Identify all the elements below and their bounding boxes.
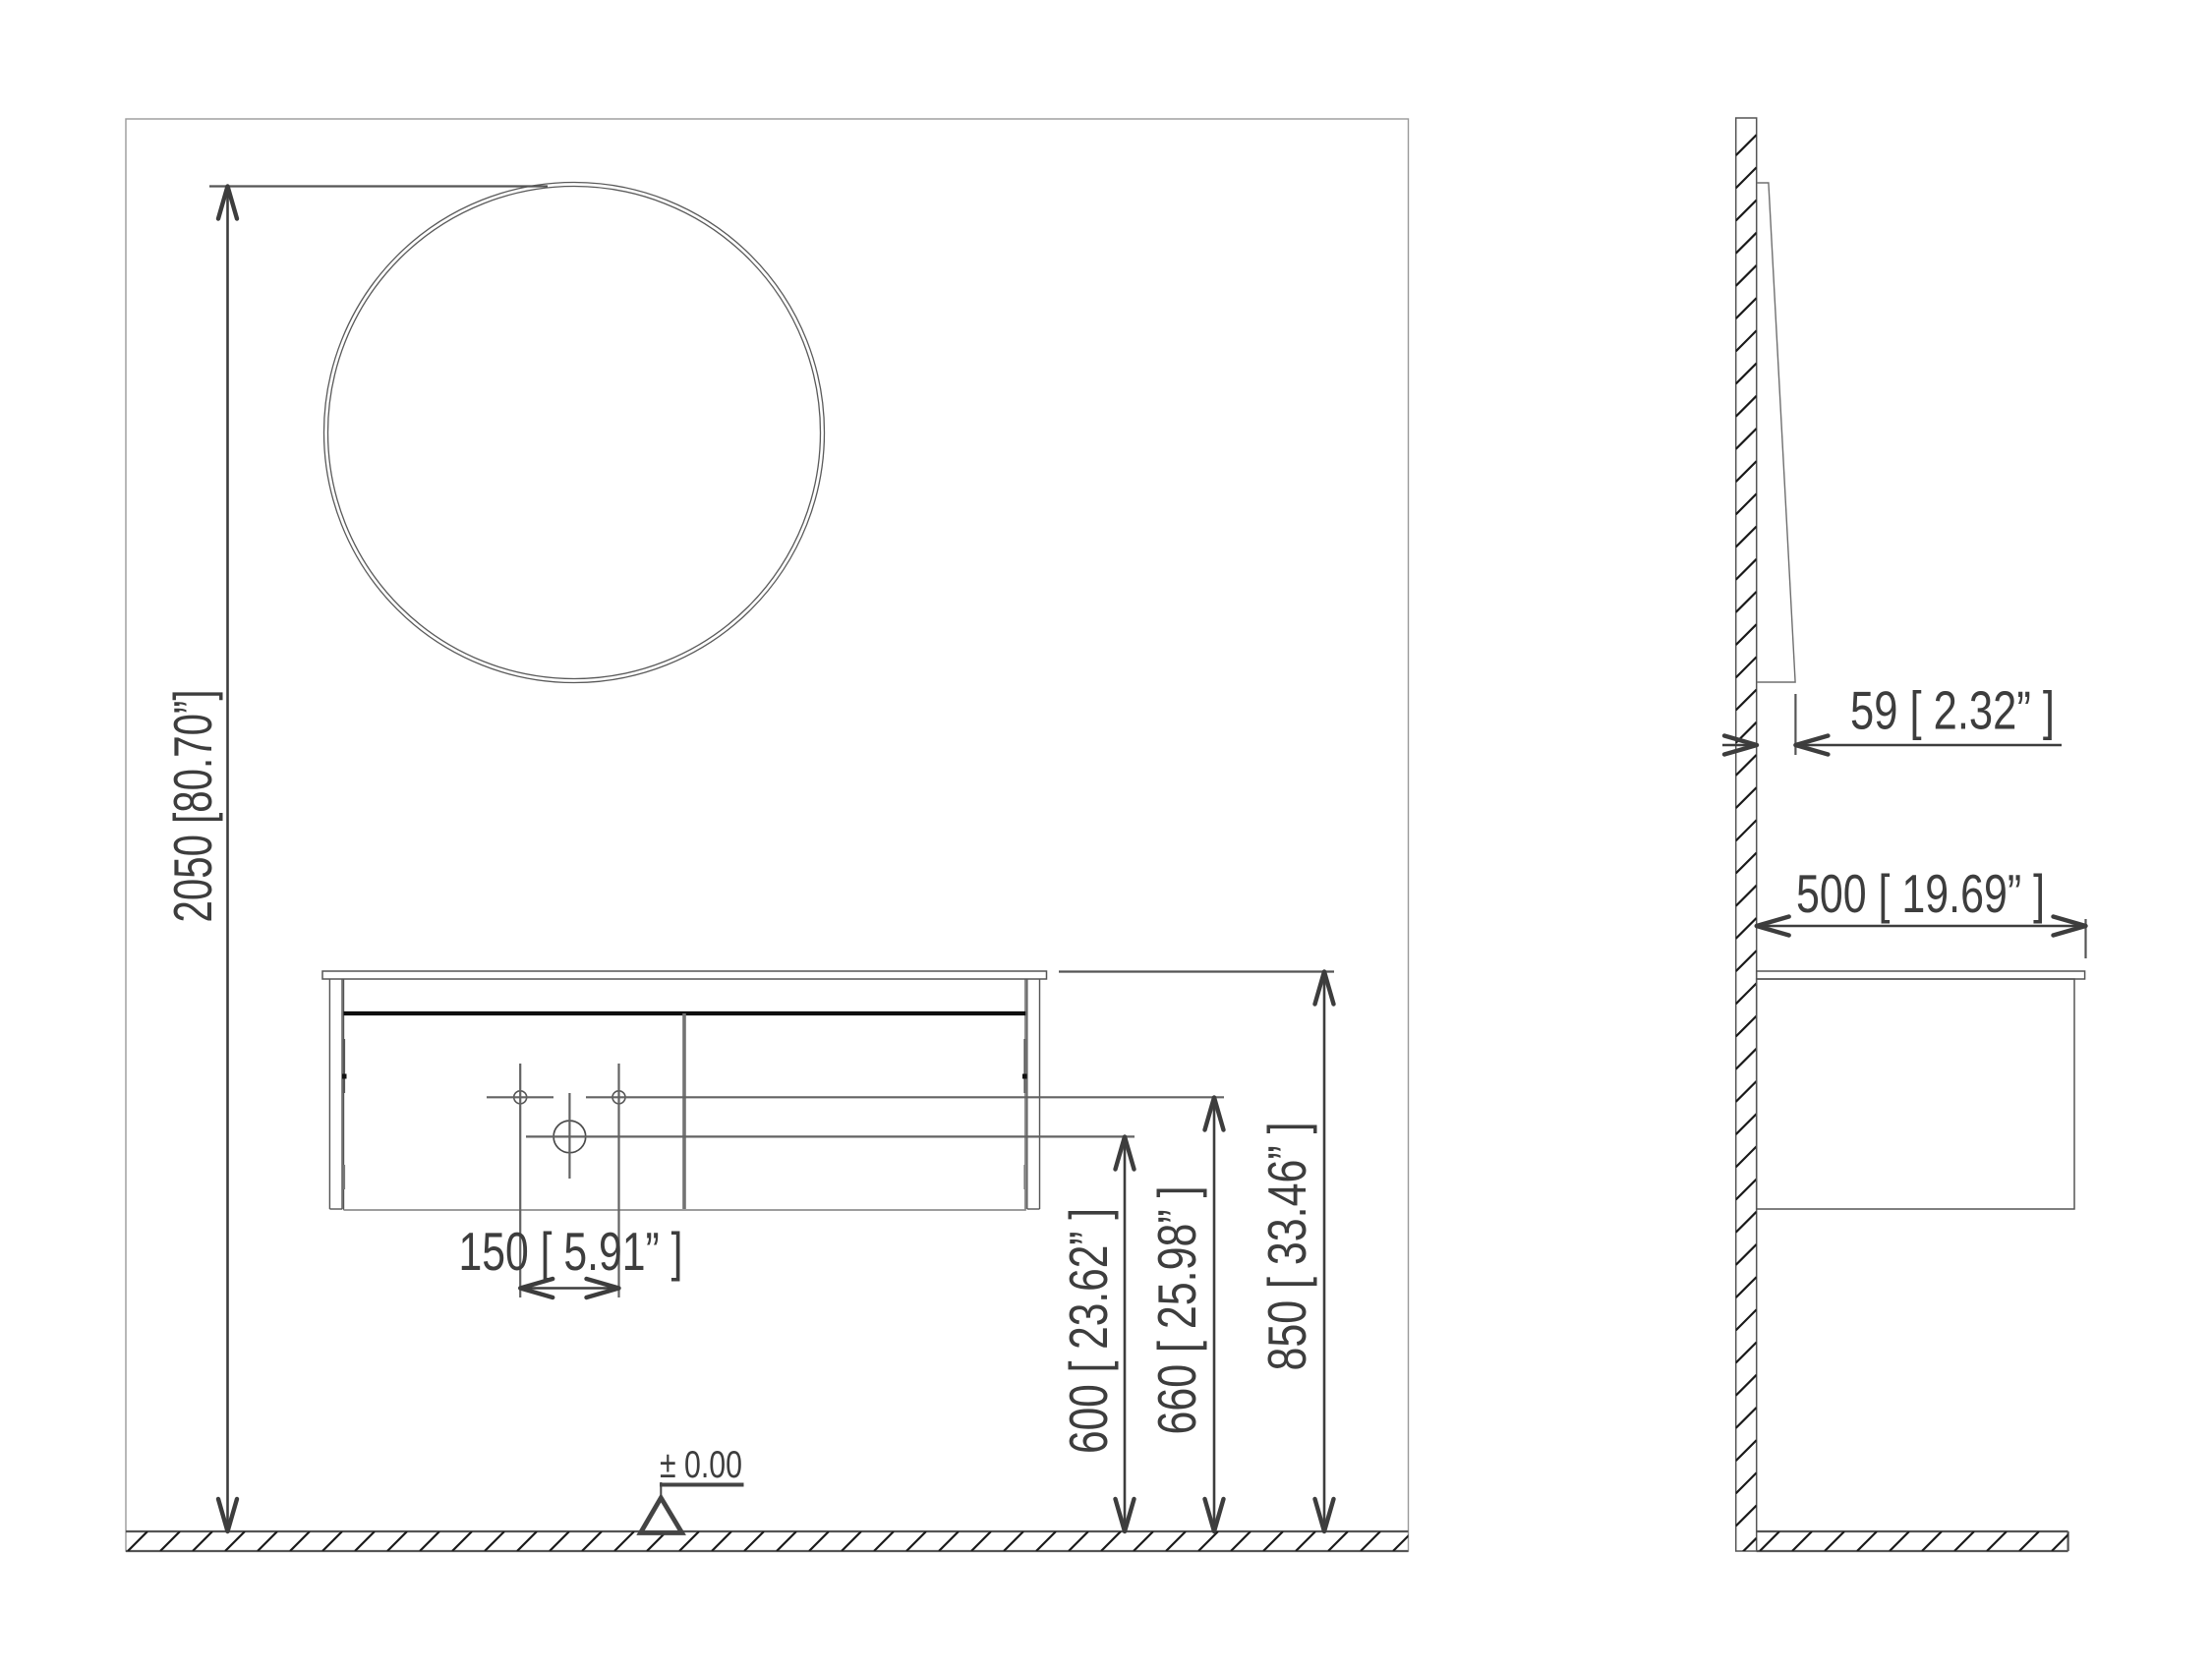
svg-text:150 [ 5.91” ]: 150 [ 5.91” ] [459, 1221, 683, 1282]
svg-text:660 [ 25.98” ]: 660 [ 25.98” ] [1146, 1186, 1207, 1435]
svg-text:59 [ 2.32” ]: 59 [ 2.32” ] [1850, 680, 2055, 741]
svg-text:600 [ 23.62” ]: 600 [ 23.62” ] [1058, 1208, 1119, 1454]
svg-text:± 0.00: ± 0.00 [660, 1444, 742, 1486]
svg-text:2050 [80.70”]: 2050 [80.70”] [162, 690, 223, 923]
svg-text:500 [ 19.69” ]: 500 [ 19.69” ] [1796, 863, 2045, 924]
svg-text:850 [ 33.46” ]: 850 [ 33.46” ] [1256, 1123, 1317, 1371]
